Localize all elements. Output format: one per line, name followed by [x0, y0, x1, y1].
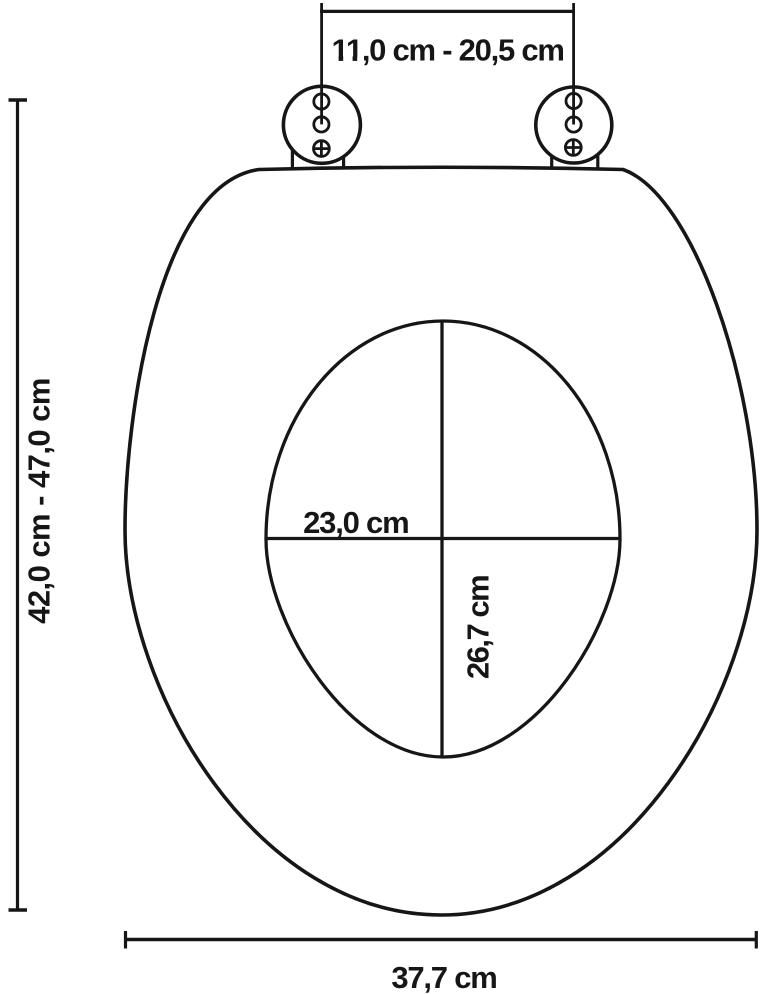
- svg-text:42,0 cm - 47,0 cm: 42,0 cm - 47,0 cm: [22, 378, 57, 624]
- svg-text:37,7 cm: 37,7 cm: [391, 960, 496, 994]
- svg-text:23,0 cm: 23,0 cm: [303, 505, 408, 540]
- svg-text:26,7 cm: 26,7 cm: [461, 576, 496, 679]
- svg-text:11,0 cm - 20,5 cm: 11,0 cm - 20,5 cm: [332, 33, 564, 68]
